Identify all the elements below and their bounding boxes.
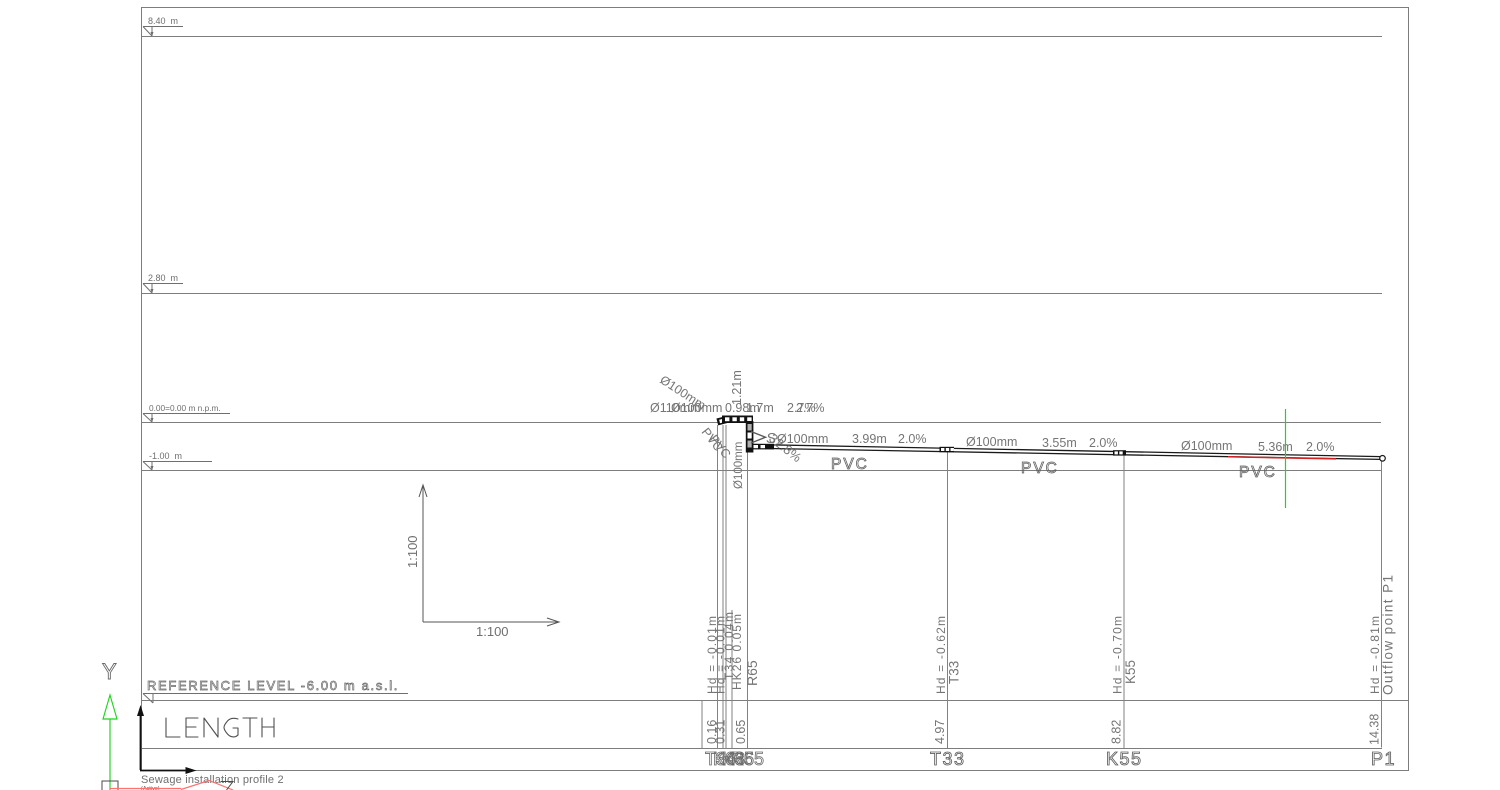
svg-text:PVC: PVC: [1239, 464, 1277, 481]
svg-text:0.65: 0.65: [734, 720, 748, 744]
svg-text:5.36m: 5.36m: [1258, 440, 1293, 454]
svg-text:1.21m: 1.21m: [730, 370, 744, 405]
svg-text:4.97: 4.97: [933, 720, 947, 744]
svg-text:K55: K55: [1106, 749, 1143, 769]
svg-text:0.31: 0.31: [714, 720, 728, 744]
svg-text:3.55m: 3.55m: [1042, 436, 1077, 450]
svg-text:3.99m: 3.99m: [852, 432, 887, 446]
svg-text:Ø100mm: Ø100mm: [966, 435, 1017, 449]
svg-text:Outflow point P1: Outflow point P1: [1381, 575, 1396, 695]
svg-text:8.82: 8.82: [1110, 720, 1124, 744]
svg-text:PVC: PVC: [1021, 460, 1059, 477]
svg-text:Y: Y: [102, 659, 117, 684]
svg-text:K55: K55: [1123, 660, 1138, 684]
svg-text:2.0%: 2.0%: [1089, 436, 1118, 450]
svg-text:R65: R65: [731, 749, 764, 769]
svg-text:2.7%: 2.7%: [796, 401, 825, 415]
svg-text:Ø100mm: Ø100mm: [1181, 439, 1232, 453]
svg-text:2.0%: 2.0%: [1306, 440, 1335, 454]
svg-text:T33: T33: [930, 749, 966, 769]
svg-text:Sewage installation profile 2: Sewage installation profile 2: [141, 774, 284, 786]
svg-text:0.00=0.00 m n.p.m.: 0.00=0.00 m n.p.m.: [149, 403, 221, 413]
svg-text:PVC: PVC: [831, 456, 869, 473]
svg-text:1:100: 1:100: [405, 535, 420, 568]
svg-text:Ø100mm: Ø100mm: [671, 401, 722, 415]
svg-text:1.7m: 1.7m: [746, 401, 774, 415]
svg-text:T33: T33: [947, 661, 962, 684]
svg-text:2.0%: 2.0%: [898, 432, 927, 446]
svg-text:REFERENCE LEVEL -6.00 m a.s.l: REFERENCE LEVEL -6.00 m a.s.l.: [147, 678, 399, 693]
svg-text:Ø100mm: Ø100mm: [733, 442, 745, 489]
svg-text:HK26 0.05m: HK26 0.05m: [730, 614, 744, 690]
svg-text:-1.00 m: -1.00 m: [149, 451, 182, 461]
svg-text:1:100: 1:100: [476, 624, 509, 639]
svg-text:14.38: 14.38: [1368, 714, 1382, 745]
svg-text:2.80 m: 2.80 m: [148, 273, 178, 283]
svg-text:R65: R65: [744, 660, 760, 686]
svg-text:8.40 m: 8.40 m: [148, 16, 178, 26]
svg-text:P1: P1: [1371, 749, 1396, 769]
